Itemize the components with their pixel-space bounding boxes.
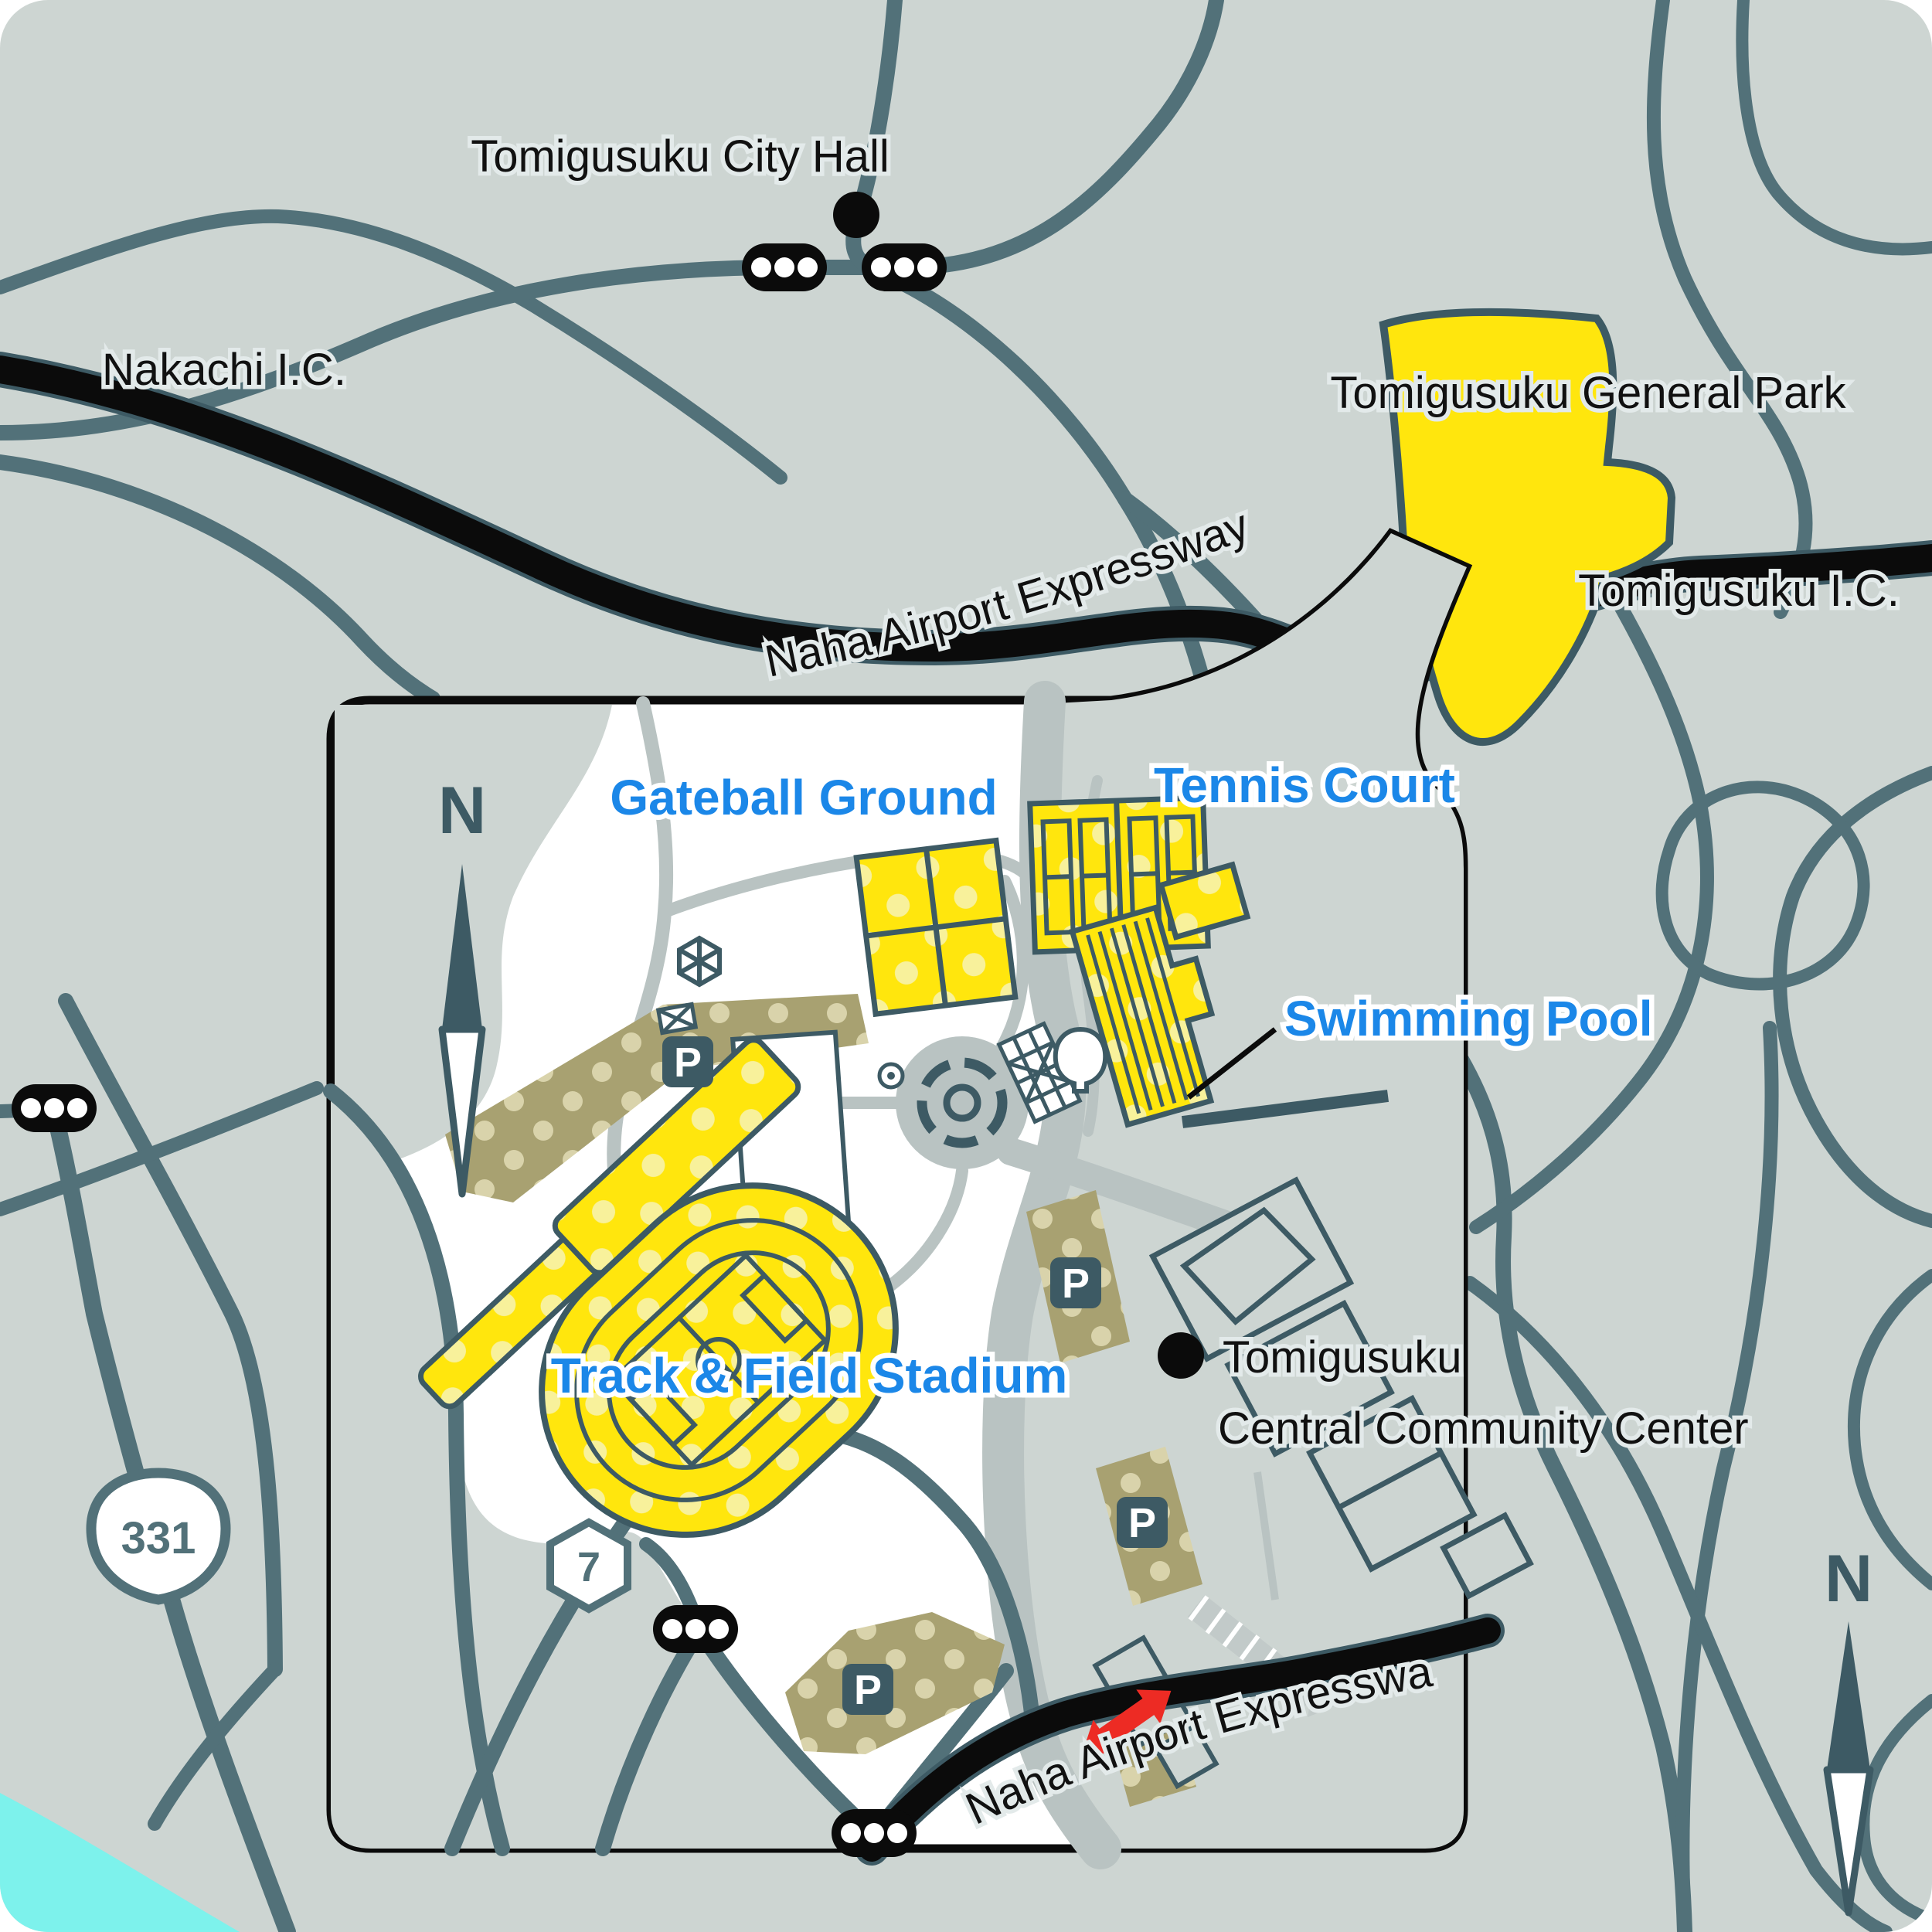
city-hall-label: Tomigusuku City Hall: [471, 131, 889, 182]
route-7-label: 7: [577, 1544, 600, 1590]
parking-icon: P: [662, 1036, 713, 1087]
bench-icon: [658, 1004, 696, 1032]
route-badge-331-icon: 331: [91, 1473, 226, 1600]
parking-icon: P: [1050, 1257, 1101, 1308]
community-center-label-2: Central Community Center: [1218, 1403, 1749, 1454]
map-canvas: P P P P 7 N Gateball Ground Tennis Court: [0, 0, 1932, 1932]
north-label: N: [1825, 1542, 1872, 1616]
route-badge-7-icon: 7: [550, 1522, 628, 1609]
parking-label: P: [674, 1039, 702, 1086]
north-label: N: [438, 774, 486, 848]
tennis-label: Tennis Court: [1154, 757, 1455, 813]
fountain-icon: [879, 1064, 903, 1087]
general-park-label: Tomigusuku General Park: [1330, 368, 1846, 418]
pool-label: Swimming Pool: [1284, 991, 1652, 1046]
parking-icon: P: [1117, 1497, 1168, 1548]
tomigusuku-ic-label: Tomigusuku I.C.: [1578, 566, 1900, 616]
route-331-label: 331: [121, 1513, 196, 1563]
parking-label: P: [1128, 1500, 1156, 1546]
parking-icon: P: [842, 1664, 893, 1715]
parking-label: P: [854, 1667, 882, 1713]
gateball-ground: [856, 841, 1015, 1015]
stadium-label: Track & Field Stadium: [551, 1348, 1068, 1403]
poi-dot-icon: [1158, 1332, 1204, 1379]
traffic-signal-icon: [832, 1809, 917, 1857]
traffic-signal-icon: [862, 243, 947, 291]
access-map: P P P P 7 N Gateball Ground Tennis Court: [0, 0, 1932, 1932]
gateball-label: Gateball Ground: [610, 770, 997, 825]
nakachi-ic-label: Nakachi I.C.: [102, 345, 346, 395]
poi-dot-icon: [833, 192, 879, 238]
parking-label: P: [1062, 1260, 1090, 1307]
traffic-signal-icon: [12, 1084, 97, 1132]
traffic-signal-icon: [653, 1605, 738, 1653]
gazebo-icon: [679, 938, 719, 985]
community-center-label-1: Tomigusuku: [1223, 1332, 1461, 1383]
traffic-signal-icon: [742, 243, 827, 291]
